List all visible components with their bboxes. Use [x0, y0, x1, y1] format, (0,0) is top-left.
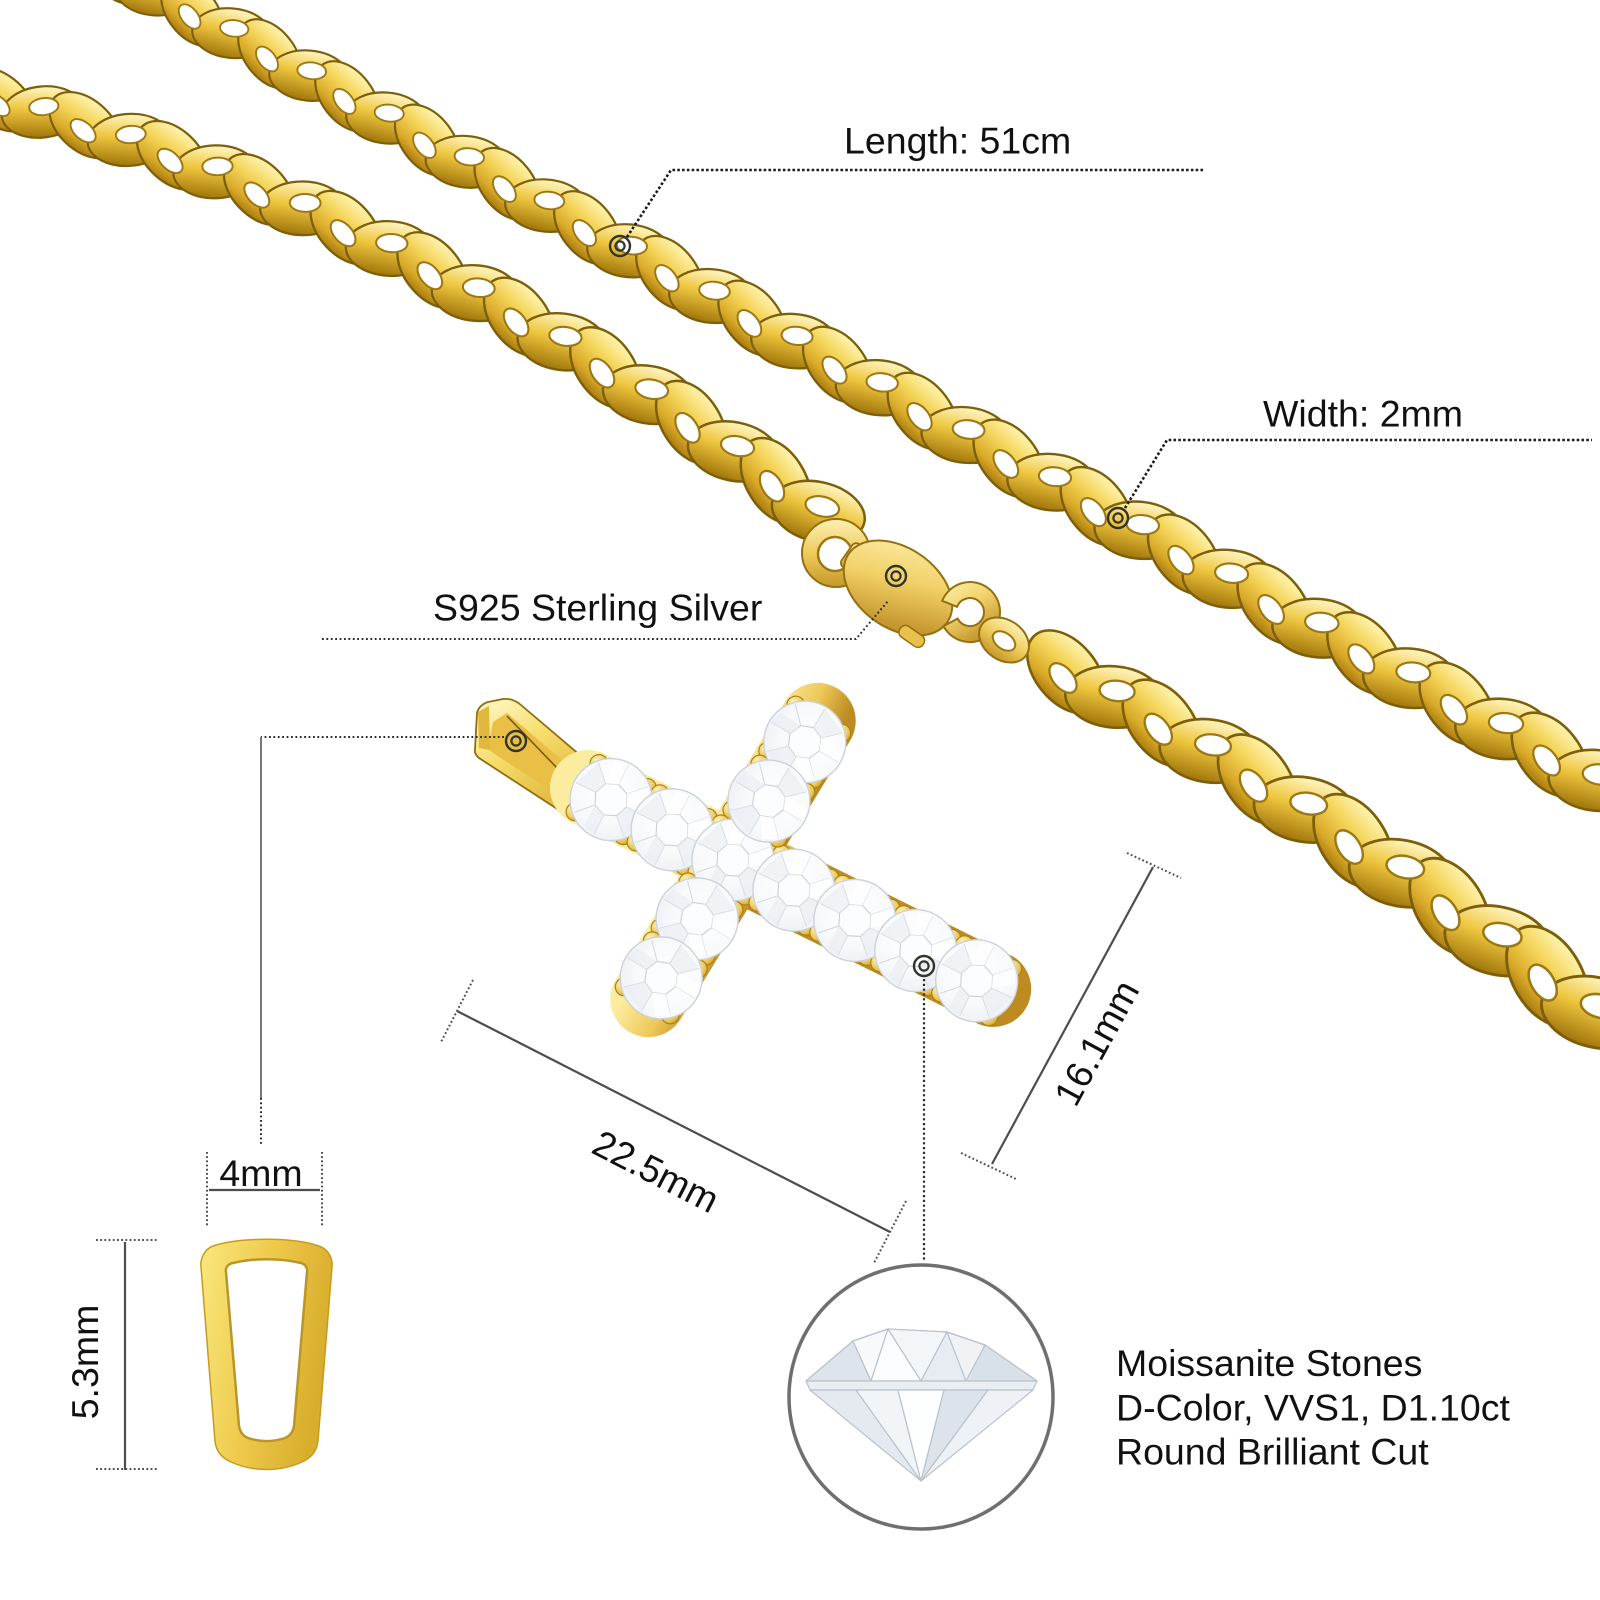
svg-text:Width: 2mm: Width: 2mm [1263, 393, 1463, 435]
svg-text:S925 Sterling Silver: S925 Sterling Silver [433, 587, 762, 629]
svg-text:4mm: 4mm [219, 1152, 302, 1194]
svg-text:Round Brilliant Cut: Round Brilliant Cut [1116, 1431, 1429, 1473]
svg-text:5.3mm: 5.3mm [64, 1305, 106, 1420]
svg-text:Length: 51cm: Length: 51cm [844, 120, 1071, 162]
svg-text:Moissanite Stones: Moissanite Stones [1116, 1342, 1422, 1384]
svg-text:D-Color, VVS1, D1.10ct: D-Color, VVS1, D1.10ct [1116, 1387, 1510, 1429]
